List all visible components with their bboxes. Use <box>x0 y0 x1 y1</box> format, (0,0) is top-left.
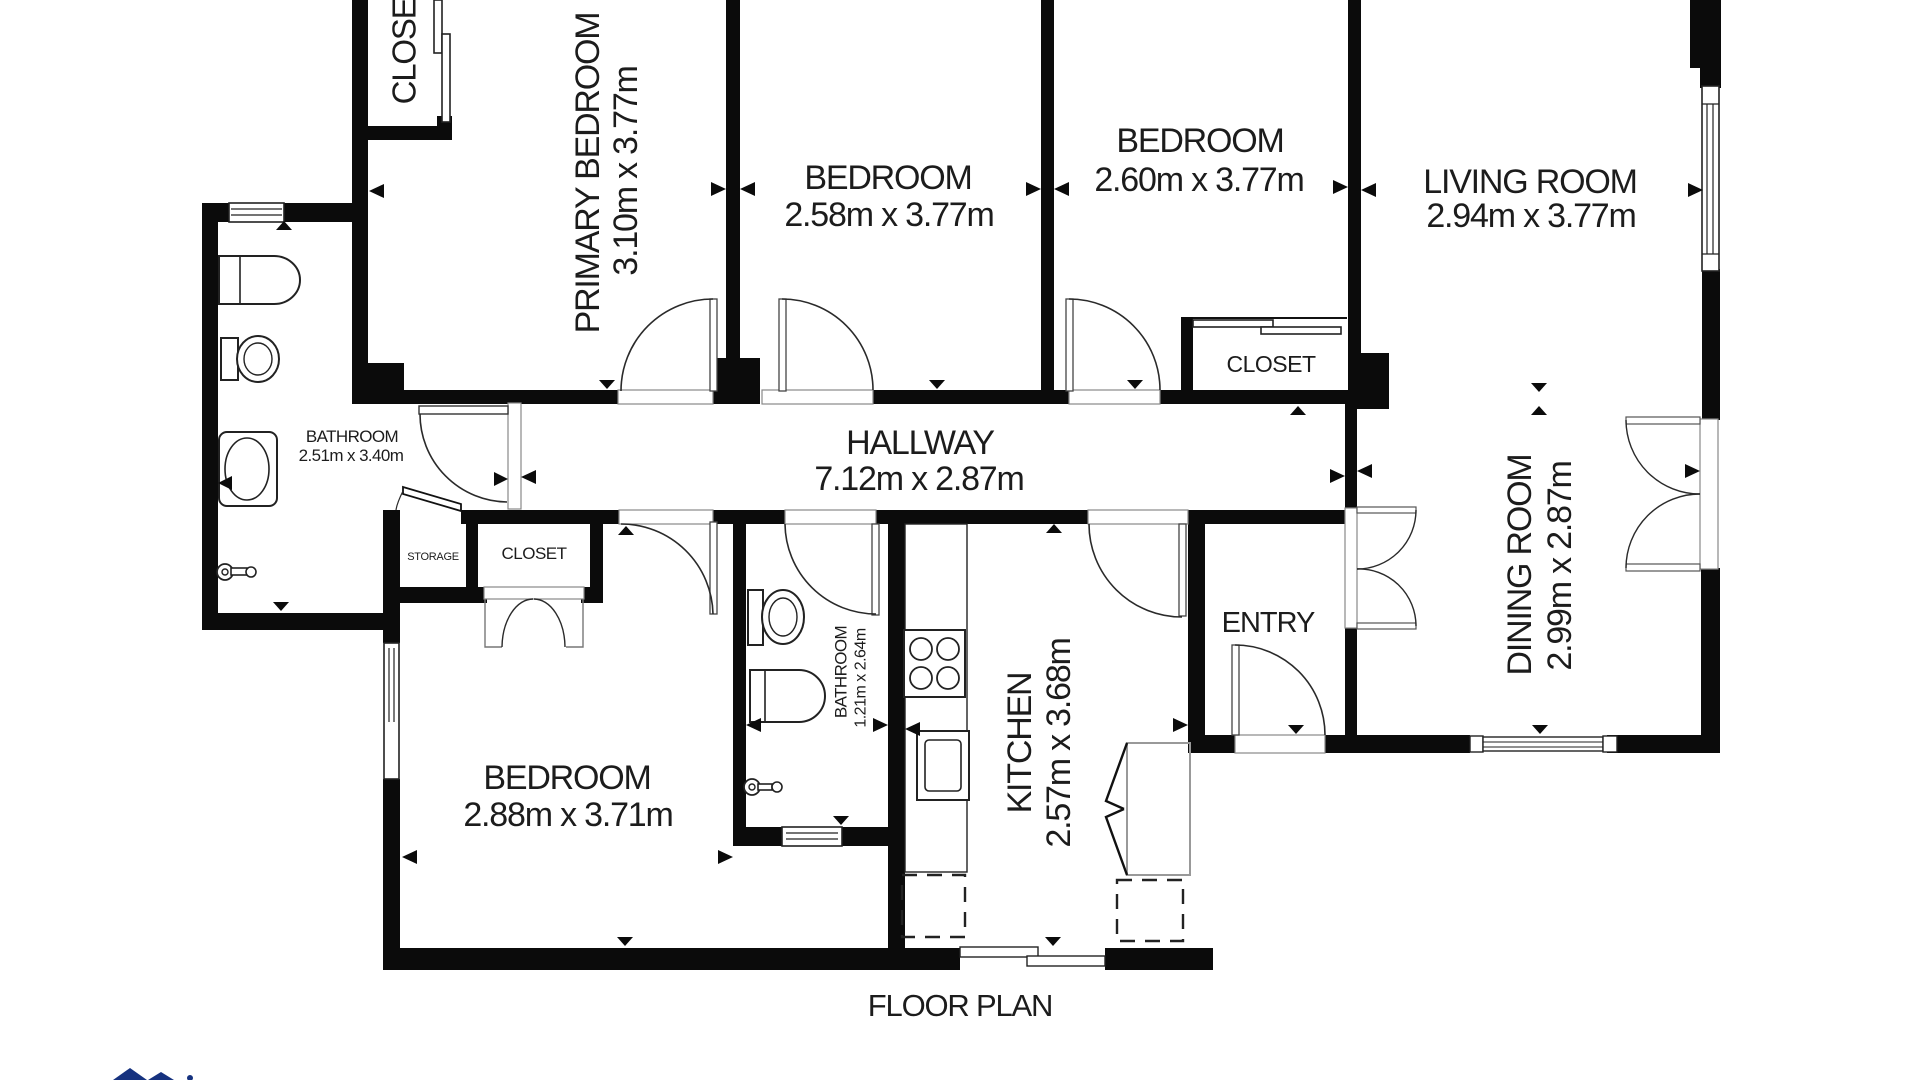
svg-text:LIVING ROOM: LIVING ROOM <box>1423 163 1637 201</box>
svg-text:BEDROOM: BEDROOM <box>804 159 971 197</box>
svg-text:BEDROOM: BEDROOM <box>1116 122 1283 160</box>
svg-text:CLOSET: CLOSET <box>1226 351 1315 377</box>
svg-text:DINING ROOM: DINING ROOM <box>1501 454 1539 675</box>
svg-text:ENTRY: ENTRY <box>1222 607 1315 639</box>
svg-text:3.10m x 3.77m: 3.10m x 3.77m <box>607 66 645 275</box>
svg-text:KITCHEN: KITCHEN <box>1001 673 1039 814</box>
svg-text:2.57m x 3.68m: 2.57m x 3.68m <box>1040 638 1078 847</box>
svg-text:2.60m x 3.77m: 2.60m x 3.77m <box>1094 161 1303 199</box>
svg-text:2.51m x 3.40m: 2.51m x 3.40m <box>299 446 404 465</box>
svg-text:1.21m x 2.64m: 1.21m x 2.64m <box>853 628 870 728</box>
svg-text:7.12m x 2.87m: 7.12m x 2.87m <box>814 460 1023 498</box>
svg-text:CLOSET: CLOSET <box>501 544 566 563</box>
svg-text:HALLWAY: HALLWAY <box>846 424 994 462</box>
svg-text:FLOOR PLAN: FLOOR PLAN <box>868 988 1052 1023</box>
svg-text:BEDROOM: BEDROOM <box>483 759 650 797</box>
svg-text:BATHROOM: BATHROOM <box>306 427 398 446</box>
svg-text:PRIMARY BEDROOM: PRIMARY BEDROOM <box>569 13 607 334</box>
svg-text:2.58m x 3.77m: 2.58m x 3.77m <box>784 196 993 234</box>
svg-text:2.94m x 3.77m: 2.94m x 3.77m <box>1426 197 1635 235</box>
svg-text:2.88m x 3.71m: 2.88m x 3.71m <box>463 796 672 834</box>
svg-text:2.99m x 2.87m: 2.99m x 2.87m <box>1541 461 1579 670</box>
svg-text:CLOSET: CLOSET <box>386 0 423 104</box>
svg-text:STORAGE: STORAGE <box>407 551 459 563</box>
svg-text:BATHROOM: BATHROOM <box>832 626 851 718</box>
